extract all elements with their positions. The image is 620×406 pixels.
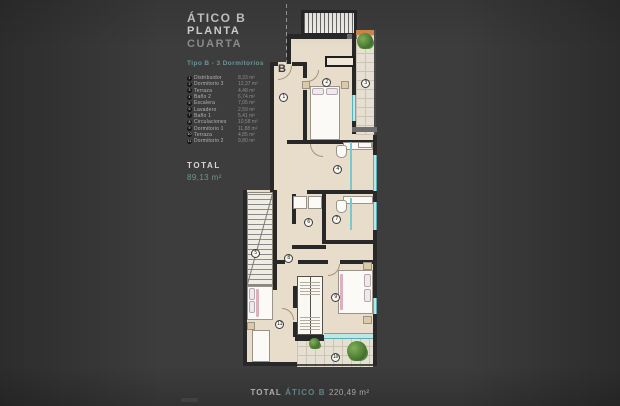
terrace-window: [352, 95, 356, 121]
legend-num: 10: [187, 132, 192, 137]
staircase-diagonal: [247, 192, 273, 286]
legend-num: 1: [187, 76, 192, 81]
nightstand-icon: [363, 316, 372, 324]
plant-icon: [347, 341, 367, 361]
shower-screen-icon: [350, 198, 352, 230]
legend-num: 2: [187, 82, 192, 87]
toilet-icon: [336, 145, 347, 158]
room-marker-escalera: 5: [251, 249, 260, 258]
pillow-icon: [326, 88, 338, 95]
pillow-icon: [249, 301, 255, 313]
legend-row: 11Dormitorio 29,80 m²: [187, 138, 287, 144]
room-marker-circulaciones: 8: [284, 254, 293, 263]
wall-segment: [322, 240, 377, 244]
wall-segment: [352, 127, 377, 132]
room-marker-dormitorio1: 9: [331, 293, 340, 302]
page-subtitle: PLANTA CUARTA: [187, 25, 287, 51]
facade-window: [373, 155, 377, 191]
wall-segment: [287, 34, 291, 64]
brochure-page: ÁTICO B PLANTA CUARTA Tipo B - 3 Dormito…: [0, 0, 620, 406]
wall-segment: [322, 194, 326, 244]
footer-total-accent: ÁTICO B: [285, 388, 326, 397]
desk-icon: [325, 56, 355, 67]
shelf-icon: [358, 142, 372, 148]
sink-counter-icon: [343, 196, 373, 204]
info-panel: ÁTICO B PLANTA CUARTA Tipo B - 3 Dormito…: [187, 12, 287, 182]
pillow-icon: [249, 288, 255, 300]
wall-segment: [303, 90, 307, 140]
dryer-icon: [308, 196, 322, 209]
room-marker-bano2: 4: [333, 165, 342, 174]
wardrobe-icon: [297, 276, 323, 335]
total-label: TOTAL: [187, 161, 287, 170]
desk-icon: [252, 330, 270, 362]
pillow-icon: [364, 274, 371, 287]
plant-icon: [357, 33, 373, 49]
legend-num: 11: [187, 139, 192, 144]
legend-num: 4: [187, 95, 192, 100]
facade-window: [373, 298, 377, 314]
wall-segment: [307, 190, 377, 194]
type-line: Tipo B - 3 Dormitorios: [187, 60, 287, 67]
pillow-icon: [312, 88, 324, 95]
shower-screen-icon: [350, 142, 352, 190]
washer-icon: [293, 196, 307, 209]
legend-num: 6: [187, 107, 192, 112]
wardrobe-rail: [300, 281, 320, 295]
subtitle-primary: PLANTA: [187, 25, 240, 37]
nightstand-icon: [341, 81, 349, 89]
terrace-sliding-window: [324, 333, 373, 339]
legend-num: 8: [187, 120, 192, 125]
blanket-accent: [340, 274, 343, 310]
room-marker-lavadero: 6: [304, 218, 313, 227]
illegible-watermark-text: [181, 398, 198, 402]
terrace-parapet: [297, 364, 375, 366]
terrace-parapet: [374, 30, 376, 135]
room-marker-bano1: 7: [332, 215, 341, 224]
wall-segment: [243, 362, 297, 366]
plant-icon: [309, 338, 320, 349]
room-marker-terraza-top: 3: [361, 79, 370, 88]
page-title: ÁTICO B: [187, 12, 287, 25]
toilet-icon: [336, 200, 347, 213]
room-marker-dormitorio3: 2: [322, 78, 331, 87]
legend-num: 7: [187, 113, 192, 118]
footer-total-label: TOTAL: [250, 388, 281, 397]
total-value: 89,13 m²: [187, 173, 287, 182]
legend-num: 5: [187, 101, 192, 106]
wall-segment: [273, 190, 277, 290]
room-legend: 1Distribuidor8,33 m² 2Dormitorio 312,37 …: [187, 75, 287, 144]
nightstand-icon: [363, 262, 372, 270]
nightstand-icon: [247, 322, 255, 330]
wall-segment: [292, 245, 326, 249]
wardrobe-rail: [300, 316, 320, 330]
room-marker-terraza-bottom: 10: [331, 353, 340, 362]
footer-total-value: 220,49 m²: [329, 388, 370, 397]
legend-num: 9: [187, 126, 192, 131]
roof-stair-hatch: [301, 10, 357, 36]
wall-segment: [298, 260, 328, 264]
footer-total: TOTAL ÁTICO B 220,49 m²: [0, 388, 620, 397]
legend-num: 3: [187, 88, 192, 93]
blanket-accent: [256, 289, 259, 317]
room-marker-dormitorio2: 11: [275, 320, 284, 329]
nightstand-icon: [302, 81, 310, 89]
subtitle-accent: CUARTA: [187, 38, 242, 50]
facade-window: [373, 202, 377, 230]
pillow-icon: [364, 289, 371, 302]
